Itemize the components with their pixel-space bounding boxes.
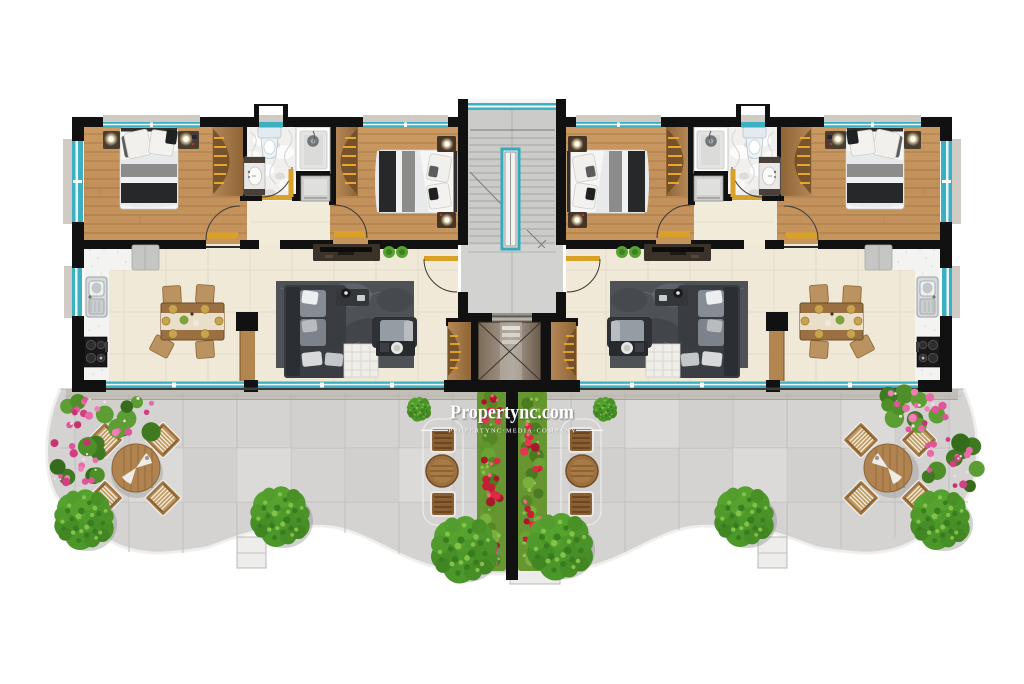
svg-text:PROPERTYNC·MEDIA·COMPANY: PROPERTYNC·MEDIA·COMPANY [449, 428, 576, 435]
svg-text:Propertync.com: Propertync.com [450, 402, 574, 424]
